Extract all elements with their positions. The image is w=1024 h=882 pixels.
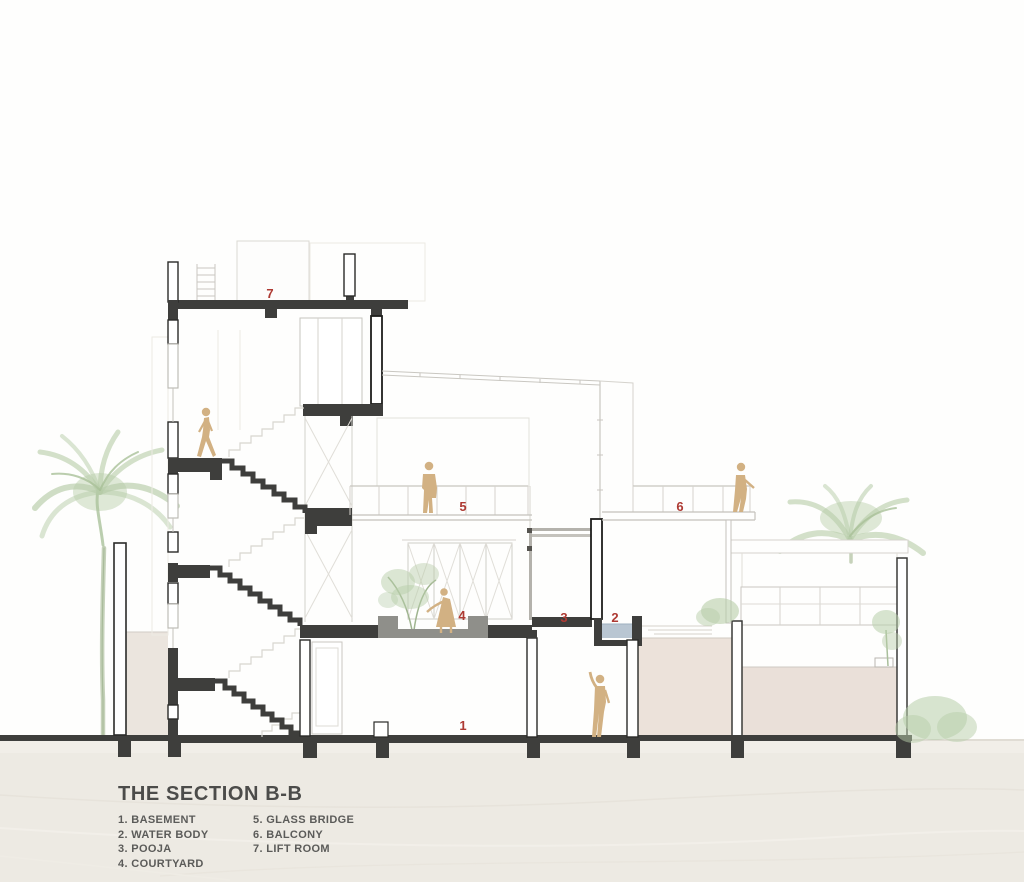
stairs-elevation xyxy=(229,408,304,737)
marker-glass-bridge: 5 xyxy=(459,499,466,514)
legend-item: 6. BALCONY xyxy=(253,829,354,841)
standing-person-on-balcony xyxy=(733,463,754,512)
glass-bridge xyxy=(350,486,532,520)
legend-column-2: 5. GLASS BRIDGE 6. BALCONY 7. LIFT ROOM xyxy=(253,814,354,870)
marker-basement: 1 xyxy=(459,718,466,733)
section-drawing-sheet: 7 5 6 4 3 2 1 THE SECTION B-B 1. BASEMEN… xyxy=(0,0,1024,882)
terrain-fills xyxy=(126,626,897,738)
waving-person-in-basement xyxy=(590,672,609,737)
section-drawing: 7 5 6 4 3 2 1 xyxy=(0,0,1024,882)
marker-lift-room: 7 xyxy=(266,286,273,301)
walking-person-on-stairs xyxy=(197,408,216,457)
bay-window xyxy=(300,306,383,426)
marker-balcony: 6 xyxy=(676,499,683,514)
boundary-wall xyxy=(114,543,126,735)
drawing-title: THE SECTION B-B xyxy=(118,783,354,806)
title-block: THE SECTION B-B 1. BASEMENT 2. WATER BOD… xyxy=(118,783,354,870)
cut-wall-right xyxy=(591,519,602,619)
legend-item: 7. LIFT ROOM xyxy=(253,843,354,855)
legend: 1. BASEMENT 2. WATER BODY 3. POOJA 4. CO… xyxy=(118,814,354,870)
legend-column-1: 1. BASEMENT 2. WATER BODY 3. POOJA 4. CO… xyxy=(118,814,253,870)
basement xyxy=(300,630,638,737)
legend-item: 5. GLASS BRIDGE xyxy=(253,814,354,826)
parapet-right xyxy=(344,254,355,296)
sloped-roof xyxy=(382,371,633,518)
roof-ladder xyxy=(197,264,215,300)
marker-pooja: 3 xyxy=(560,610,567,625)
annex-column-left xyxy=(732,621,742,738)
main-building xyxy=(152,241,642,737)
lift-shaft xyxy=(305,416,352,622)
marker-water-body: 2 xyxy=(611,610,618,625)
pooja-frame xyxy=(527,528,593,620)
parapet-left xyxy=(168,262,178,302)
standing-person-on-glass-bridge xyxy=(422,462,437,513)
legend-item: 1. BASEMENT xyxy=(118,814,253,826)
legend-item: 2. WATER BODY xyxy=(118,829,253,841)
stairs-cut xyxy=(210,461,305,737)
legend-item: 4. COURTYARD xyxy=(118,858,253,870)
legend-item: 3. POOJA xyxy=(118,843,253,855)
marker-courtyard: 4 xyxy=(458,608,466,623)
